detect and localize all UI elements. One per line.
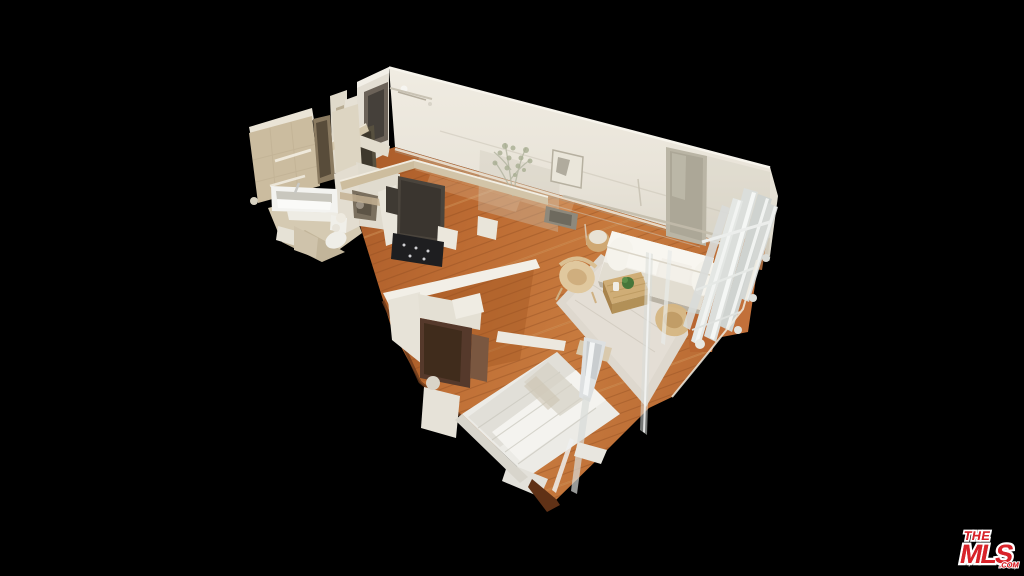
svg-text:.COM: .COM bbox=[998, 561, 1019, 570]
